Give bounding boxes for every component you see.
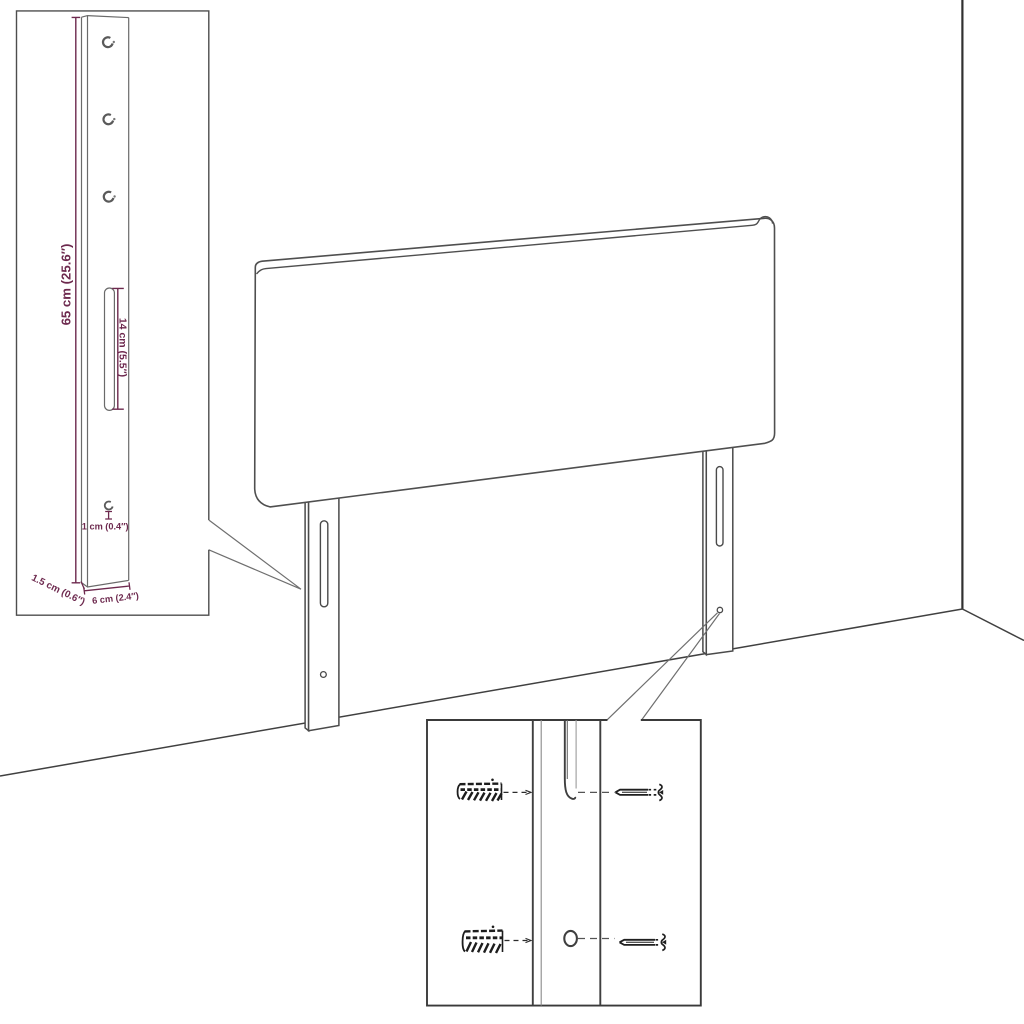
svg-text:65 cm (25.6″): 65 cm (25.6″) — [59, 244, 74, 326]
svg-text:14 cm (5.5″): 14 cm (5.5″) — [117, 318, 129, 377]
svg-text:1 cm (0.4″): 1 cm (0.4″) — [82, 521, 129, 531]
